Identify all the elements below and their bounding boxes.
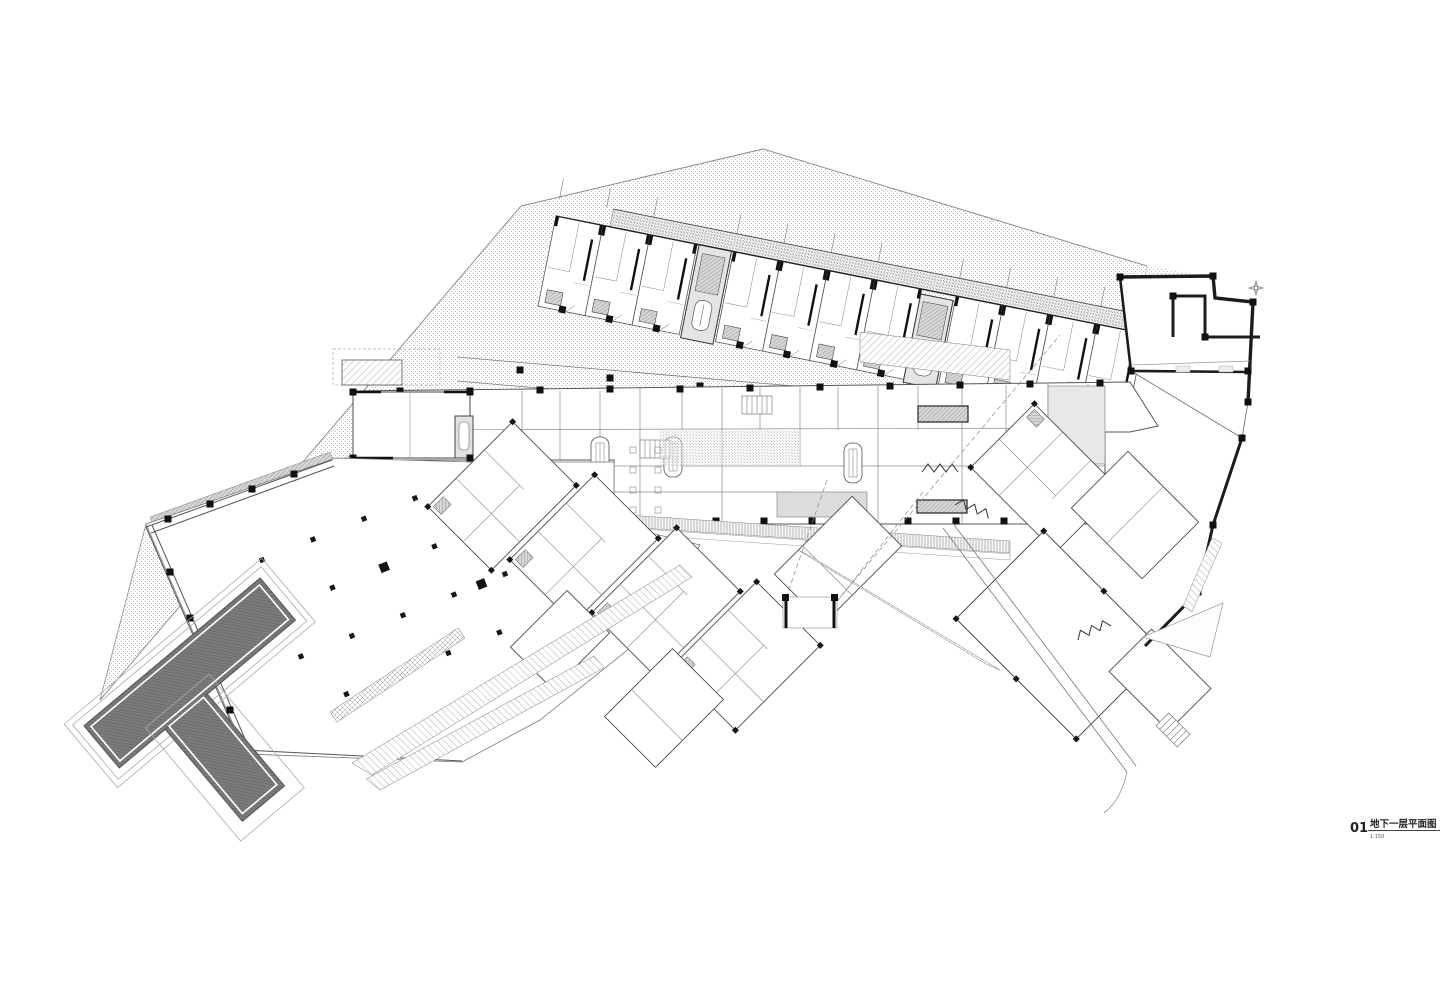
- north-marker-icon: [1249, 281, 1263, 295]
- title-block: 01 地下一层平面图 1:150: [1350, 818, 1440, 840]
- detached-pavilion: [782, 594, 838, 628]
- floor-plan-drawing: 01 地下一层平面图 1:150: [0, 0, 1447, 1000]
- drawing-title: 地下一层平面图: [1370, 818, 1437, 830]
- drawing-number: 01: [1350, 821, 1368, 836]
- drawing-scale: 1:150: [1370, 834, 1384, 840]
- west-pavilion: [350, 389, 474, 462]
- floor-plan-sheet: 01 地下一层平面图 1:150: [0, 0, 1447, 1000]
